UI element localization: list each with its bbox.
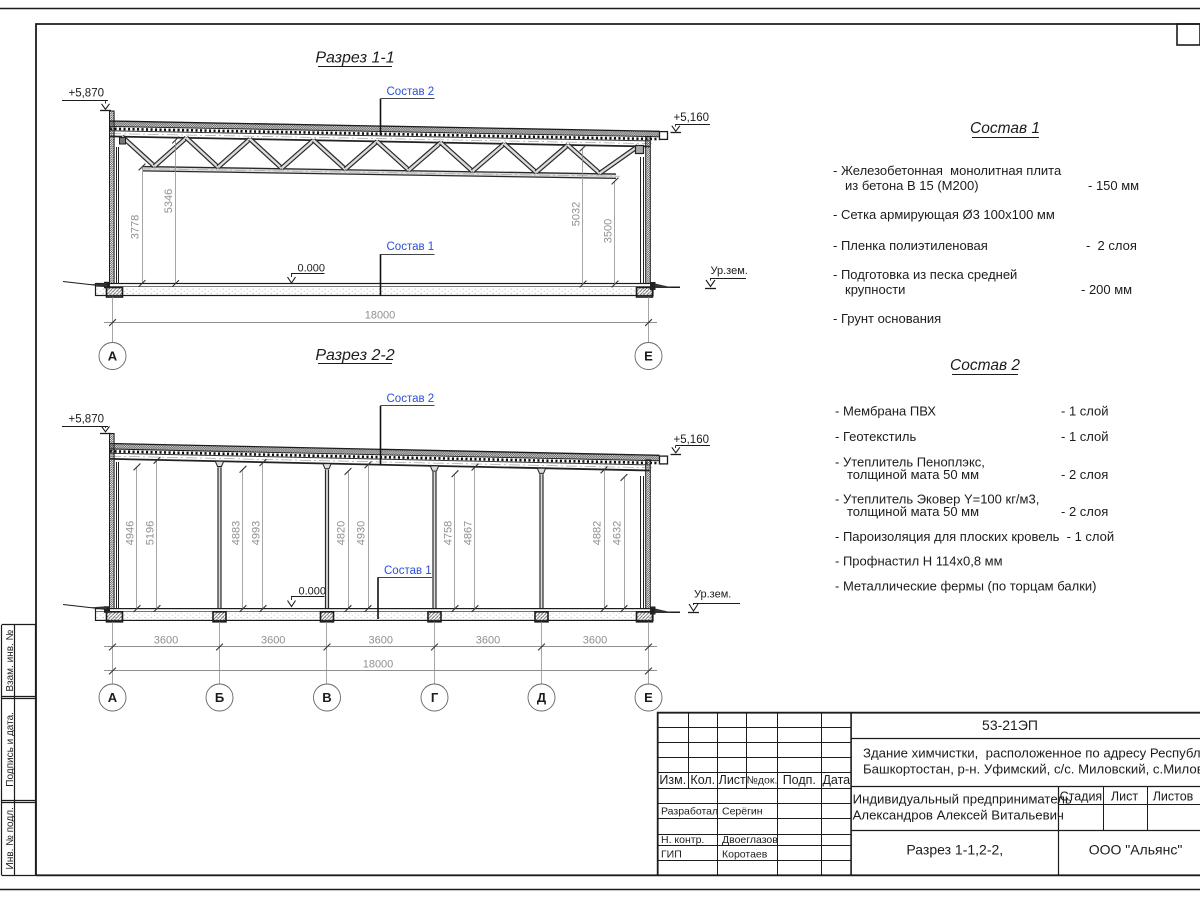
svg-text:53-21ЭП: 53-21ЭП (982, 717, 1038, 733)
svg-text:4758: 4758 (443, 521, 455, 545)
svg-text:3600: 3600 (261, 634, 285, 646)
svg-text:- Подготовка из песка средней: - Подготовка из песка средней (833, 267, 1017, 282)
svg-text:5196: 5196 (145, 521, 157, 545)
svg-text:Александров Алексей Витальевич: Александров Алексей Витальевич (853, 808, 1064, 823)
svg-text:Ур.зем.: Ур.зем. (694, 589, 731, 601)
svg-text:Башкортостан, р-н. Уфимский, с: Башкортостан, р-н. Уфимский, с/с. Миловс… (863, 762, 1200, 777)
svg-text:- Геотекстиль: - Геотекстиль (835, 429, 916, 444)
svg-text:+5,160: +5,160 (674, 112, 710, 124)
svg-text:- 2 слоя: - 2 слоя (1061, 504, 1108, 519)
svg-text:Разрез 1-1: Разрез 1-1 (315, 50, 394, 67)
svg-text:Е: Е (644, 690, 653, 705)
svg-text:Изм.: Изм. (659, 773, 686, 787)
svg-text:Лист: Лист (1111, 790, 1138, 804)
svg-text:0.000: 0.000 (298, 263, 326, 275)
svg-text:Коротаев: Коротаев (722, 849, 768, 861)
svg-text:Состав 1: Состав 1 (384, 565, 432, 577)
svg-text:Разрез 1-1,2-2,: Разрез 1-1,2-2, (906, 842, 1003, 858)
svg-text:Кол.: Кол. (690, 773, 715, 787)
svg-text:Подп.: Подп. (783, 773, 816, 787)
svg-text:Состав 2: Состав 2 (387, 86, 435, 98)
svg-text:5032: 5032 (571, 202, 583, 226)
svg-text:Разрез 2-2: Разрез 2-2 (315, 347, 394, 364)
svg-text:№док.: №док. (747, 775, 778, 787)
svg-text:Состав 1: Состав 1 (387, 241, 435, 253)
svg-text:18000: 18000 (365, 310, 396, 322)
svg-text:3600: 3600 (476, 634, 500, 646)
svg-text:- 1 слой: - 1 слой (1061, 404, 1109, 419)
svg-text:толщиной мата 50 мм: толщиной мата 50 мм (847, 504, 979, 519)
svg-text:4632: 4632 (612, 521, 624, 545)
svg-text:- 2 слоя: - 2 слоя (1061, 467, 1108, 482)
svg-text:- Мембрана ПВХ: - Мембрана ПВХ (835, 404, 936, 419)
svg-text:- Металлические фермы (по торц: - Металлические фермы (по торцам балки) (835, 579, 1096, 594)
svg-text:+5,870: +5,870 (69, 88, 105, 100)
svg-text:Индивидуальный предприниматель: Индивидуальный предприниматель (853, 792, 1072, 807)
svg-text:Стадия: Стадия (1060, 790, 1103, 804)
svg-text:Д: Д (537, 690, 547, 705)
svg-text:3500: 3500 (603, 219, 615, 243)
svg-text:толщиной мата 50 мм: толщиной мата 50 мм (847, 467, 979, 482)
svg-text:4883: 4883 (231, 521, 243, 545)
svg-text:Г: Г (431, 690, 439, 705)
svg-text:- Профнастил Н 114х0,8 мм: - Профнастил Н 114х0,8 мм (835, 554, 1003, 569)
svg-text:- 2 слоя: - 2 слоя (1086, 238, 1137, 253)
svg-text:Здание химчистки, расположенн: Здание химчистки, расположенное по адрес… (863, 746, 1200, 761)
svg-text:4867: 4867 (463, 521, 475, 545)
svg-text:5346: 5346 (163, 189, 175, 213)
svg-text:+5,870: +5,870 (69, 414, 105, 426)
svg-text:Е: Е (644, 349, 653, 364)
svg-text:Ур.зем.: Ур.зем. (711, 265, 748, 277)
svg-text:Листов: Листов (1153, 790, 1194, 804)
svg-text:4882: 4882 (592, 521, 604, 545)
svg-text:+5,160: +5,160 (674, 434, 710, 446)
svg-text:Инв. № подл.: Инв. № подл. (5, 807, 16, 869)
svg-text:0.000: 0.000 (299, 586, 327, 598)
svg-text:ГИП: ГИП (661, 849, 682, 861)
svg-text:ООО "Альянс": ООО "Альянс" (1089, 842, 1183, 858)
svg-text:Подпись и дата.: Подпись и дата. (5, 712, 16, 787)
svg-text:В: В (322, 690, 331, 705)
svg-text:3600: 3600 (583, 634, 607, 646)
svg-text:Взам. инв. №: Взам. инв. № (5, 629, 16, 691)
svg-text:Состав 2: Состав 2 (950, 357, 1020, 374)
svg-text:- Пленка полиэтиленовая: - Пленка полиэтиленовая (833, 238, 988, 253)
svg-text:Дата: Дата (822, 773, 850, 787)
svg-text:Разработал: Разработал (661, 806, 718, 818)
svg-text:Лист: Лист (719, 773, 746, 787)
svg-text:- Грунт основания: - Грунт основания (833, 311, 941, 326)
svg-text:4820: 4820 (336, 521, 348, 545)
svg-text:- Сетка армирующая Ø3 100х100: - Сетка армирующая Ø3 100х100 мм (833, 207, 1055, 222)
svg-text:18000: 18000 (363, 658, 394, 670)
svg-text:3600: 3600 (369, 634, 393, 646)
svg-text:4993: 4993 (251, 521, 263, 545)
svg-text:4946: 4946 (125, 521, 137, 545)
svg-text:- Железобетонная монолитная п: - Железобетонная монолитная плита (833, 163, 1062, 178)
svg-text:А: А (108, 690, 118, 705)
svg-text:Двоеглазов: Двоеглазов (722, 834, 778, 846)
svg-text:- 200 мм: - 200 мм (1081, 282, 1132, 297)
svg-text:4930: 4930 (356, 521, 368, 545)
svg-text:А: А (108, 349, 118, 364)
svg-text:Серёгин: Серёгин (722, 806, 763, 818)
svg-text:- Пароизоляция для плоских кро: - Пароизоляция для плоских кровель - 1 с… (835, 529, 1114, 544)
svg-text:- 1 слой: - 1 слой (1061, 429, 1109, 444)
svg-text:- 150 мм: - 150 мм (1088, 178, 1139, 193)
svg-text:3778: 3778 (130, 215, 142, 239)
svg-text:Б: Б (215, 690, 224, 705)
svg-text:Состав 1: Состав 1 (970, 120, 1040, 137)
svg-text:крупности: крупности (845, 282, 905, 297)
svg-text:Состав 2: Состав 2 (387, 393, 435, 405)
svg-text:из бетона В 15 (М200): из бетона В 15 (М200) (845, 178, 979, 193)
svg-text:Н. контр.: Н. контр. (661, 834, 704, 846)
svg-text:3600: 3600 (154, 634, 178, 646)
